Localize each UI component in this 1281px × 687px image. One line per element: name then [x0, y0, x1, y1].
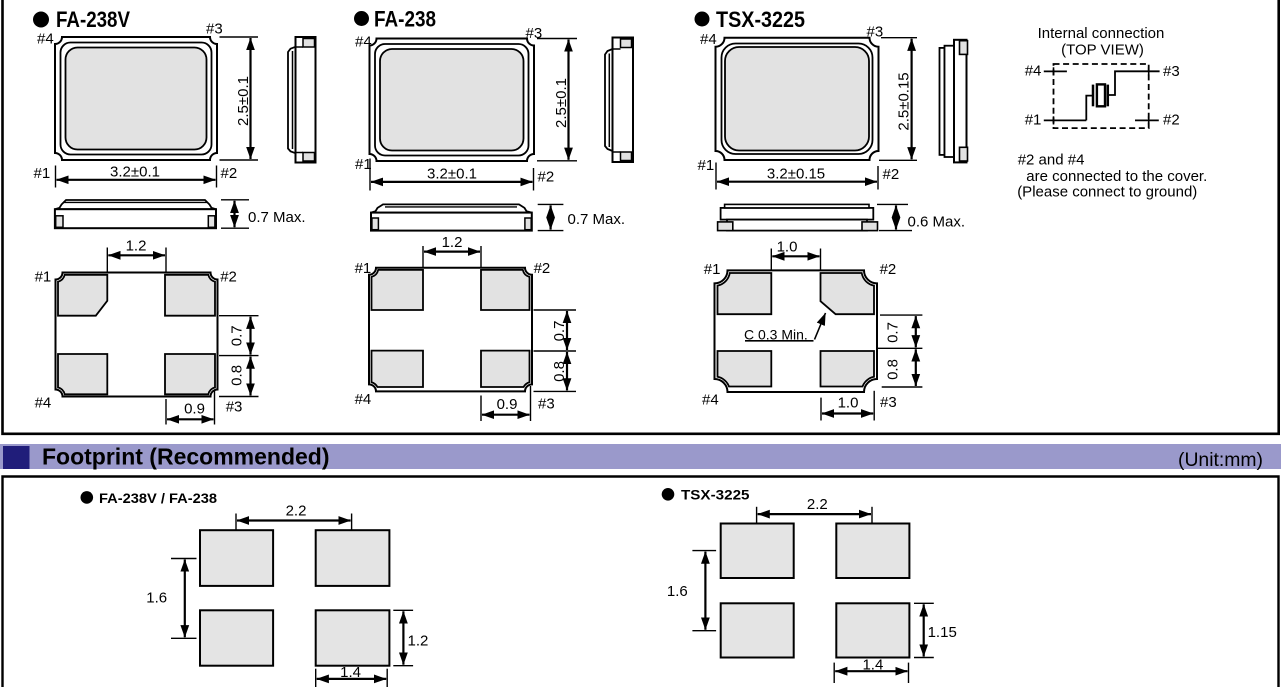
svg-text:#4: #4 [700, 31, 717, 48]
svg-text:#2: #2 [880, 261, 897, 278]
svg-text:2.2: 2.2 [286, 502, 307, 519]
svg-text:1.0: 1.0 [838, 395, 859, 412]
svg-text:#4: #4 [37, 31, 54, 48]
svg-text:3.2±0.15: 3.2±0.15 [767, 166, 825, 183]
svg-text:1.4: 1.4 [862, 656, 883, 673]
svg-text:(TOP VIEW): (TOP VIEW) [1061, 42, 1144, 59]
svg-text:#1: #1 [704, 261, 721, 278]
svg-text:0.7: 0.7 [229, 325, 246, 346]
svg-text:#1: #1 [698, 157, 715, 174]
svg-text:0.7: 0.7 [551, 321, 568, 342]
svg-text:2.5±0.1: 2.5±0.1 [235, 76, 252, 126]
svg-text:(Unit:mm): (Unit:mm) [1178, 450, 1263, 471]
svg-text:#2: #2 [883, 166, 900, 183]
svg-text:#3: #3 [880, 394, 897, 411]
svg-text:#2: #2 [221, 165, 238, 182]
svg-text:#3: #3 [226, 399, 243, 416]
svg-text:C 0.3 Min.: C 0.3 Min. [744, 326, 808, 342]
svg-text:#2: #2 [534, 260, 551, 277]
svg-text:#1: #1 [1025, 112, 1042, 129]
svg-text:#3: #3 [206, 21, 223, 38]
svg-text:#4: #4 [1025, 63, 1042, 80]
svg-text:#2: #2 [220, 269, 237, 286]
svg-text:1.0: 1.0 [777, 238, 798, 255]
svg-text:0.7 Max.: 0.7 Max. [248, 209, 306, 226]
svg-text:2.2: 2.2 [807, 496, 828, 513]
svg-text:#2: #2 [1163, 112, 1180, 129]
svg-text:3.2±0.1: 3.2±0.1 [427, 166, 477, 183]
svg-text:3.2±0.1: 3.2±0.1 [110, 164, 160, 181]
svg-text:1.4: 1.4 [340, 664, 361, 681]
svg-text:FA-238V: FA-238V [56, 7, 130, 32]
svg-text:0.9: 0.9 [184, 401, 205, 418]
svg-text:#2 and #4: #2 and #4 [1018, 152, 1085, 169]
svg-text:2.5±0.1: 2.5±0.1 [553, 78, 570, 128]
svg-text:#2: #2 [538, 169, 555, 186]
svg-text:0.8: 0.8 [229, 365, 246, 386]
svg-text:Footprint (Recommended): Footprint (Recommended) [42, 444, 330, 470]
svg-text:Internal connection: Internal connection [1038, 25, 1165, 42]
svg-text:1.6: 1.6 [667, 583, 688, 600]
svg-text:1.6: 1.6 [146, 589, 167, 606]
svg-text:1.2: 1.2 [126, 237, 147, 254]
svg-text:#3: #3 [538, 396, 555, 413]
svg-text:(Please connect to ground): (Please connect to ground) [1017, 184, 1197, 201]
svg-text:0.8: 0.8 [551, 361, 568, 382]
svg-text:#3: #3 [867, 24, 884, 41]
svg-text:0.9: 0.9 [497, 396, 518, 413]
svg-text:#1: #1 [34, 165, 51, 182]
svg-text:TSX-3225: TSX-3225 [716, 7, 805, 32]
svg-text:0.6 Max.: 0.6 Max. [908, 214, 966, 231]
svg-text:0.7 Max.: 0.7 Max. [568, 211, 626, 228]
svg-text:#1: #1 [355, 156, 372, 173]
svg-text:#3: #3 [1163, 63, 1180, 80]
svg-text:2.5±0.15: 2.5±0.15 [896, 72, 913, 130]
svg-text:1.15: 1.15 [928, 624, 957, 641]
svg-text:FA-238: FA-238 [374, 7, 436, 32]
svg-text:#1: #1 [355, 260, 372, 277]
svg-text:FA-238V / FA-238: FA-238V / FA-238 [99, 490, 217, 506]
svg-text:0.7: 0.7 [885, 322, 902, 343]
svg-text:0.8: 0.8 [885, 359, 902, 380]
svg-text:#4: #4 [35, 395, 52, 412]
svg-text:1.2: 1.2 [408, 633, 429, 650]
svg-text:are connected to the cover.: are connected to the cover. [1026, 168, 1207, 185]
svg-text:#4: #4 [355, 34, 372, 51]
svg-text:TSX-3225: TSX-3225 [681, 486, 750, 502]
svg-text:1.2: 1.2 [442, 234, 463, 251]
svg-text:#4: #4 [702, 391, 719, 408]
svg-text:#1: #1 [35, 269, 52, 286]
svg-text:#3: #3 [526, 25, 543, 42]
svg-text:#4: #4 [355, 391, 372, 408]
